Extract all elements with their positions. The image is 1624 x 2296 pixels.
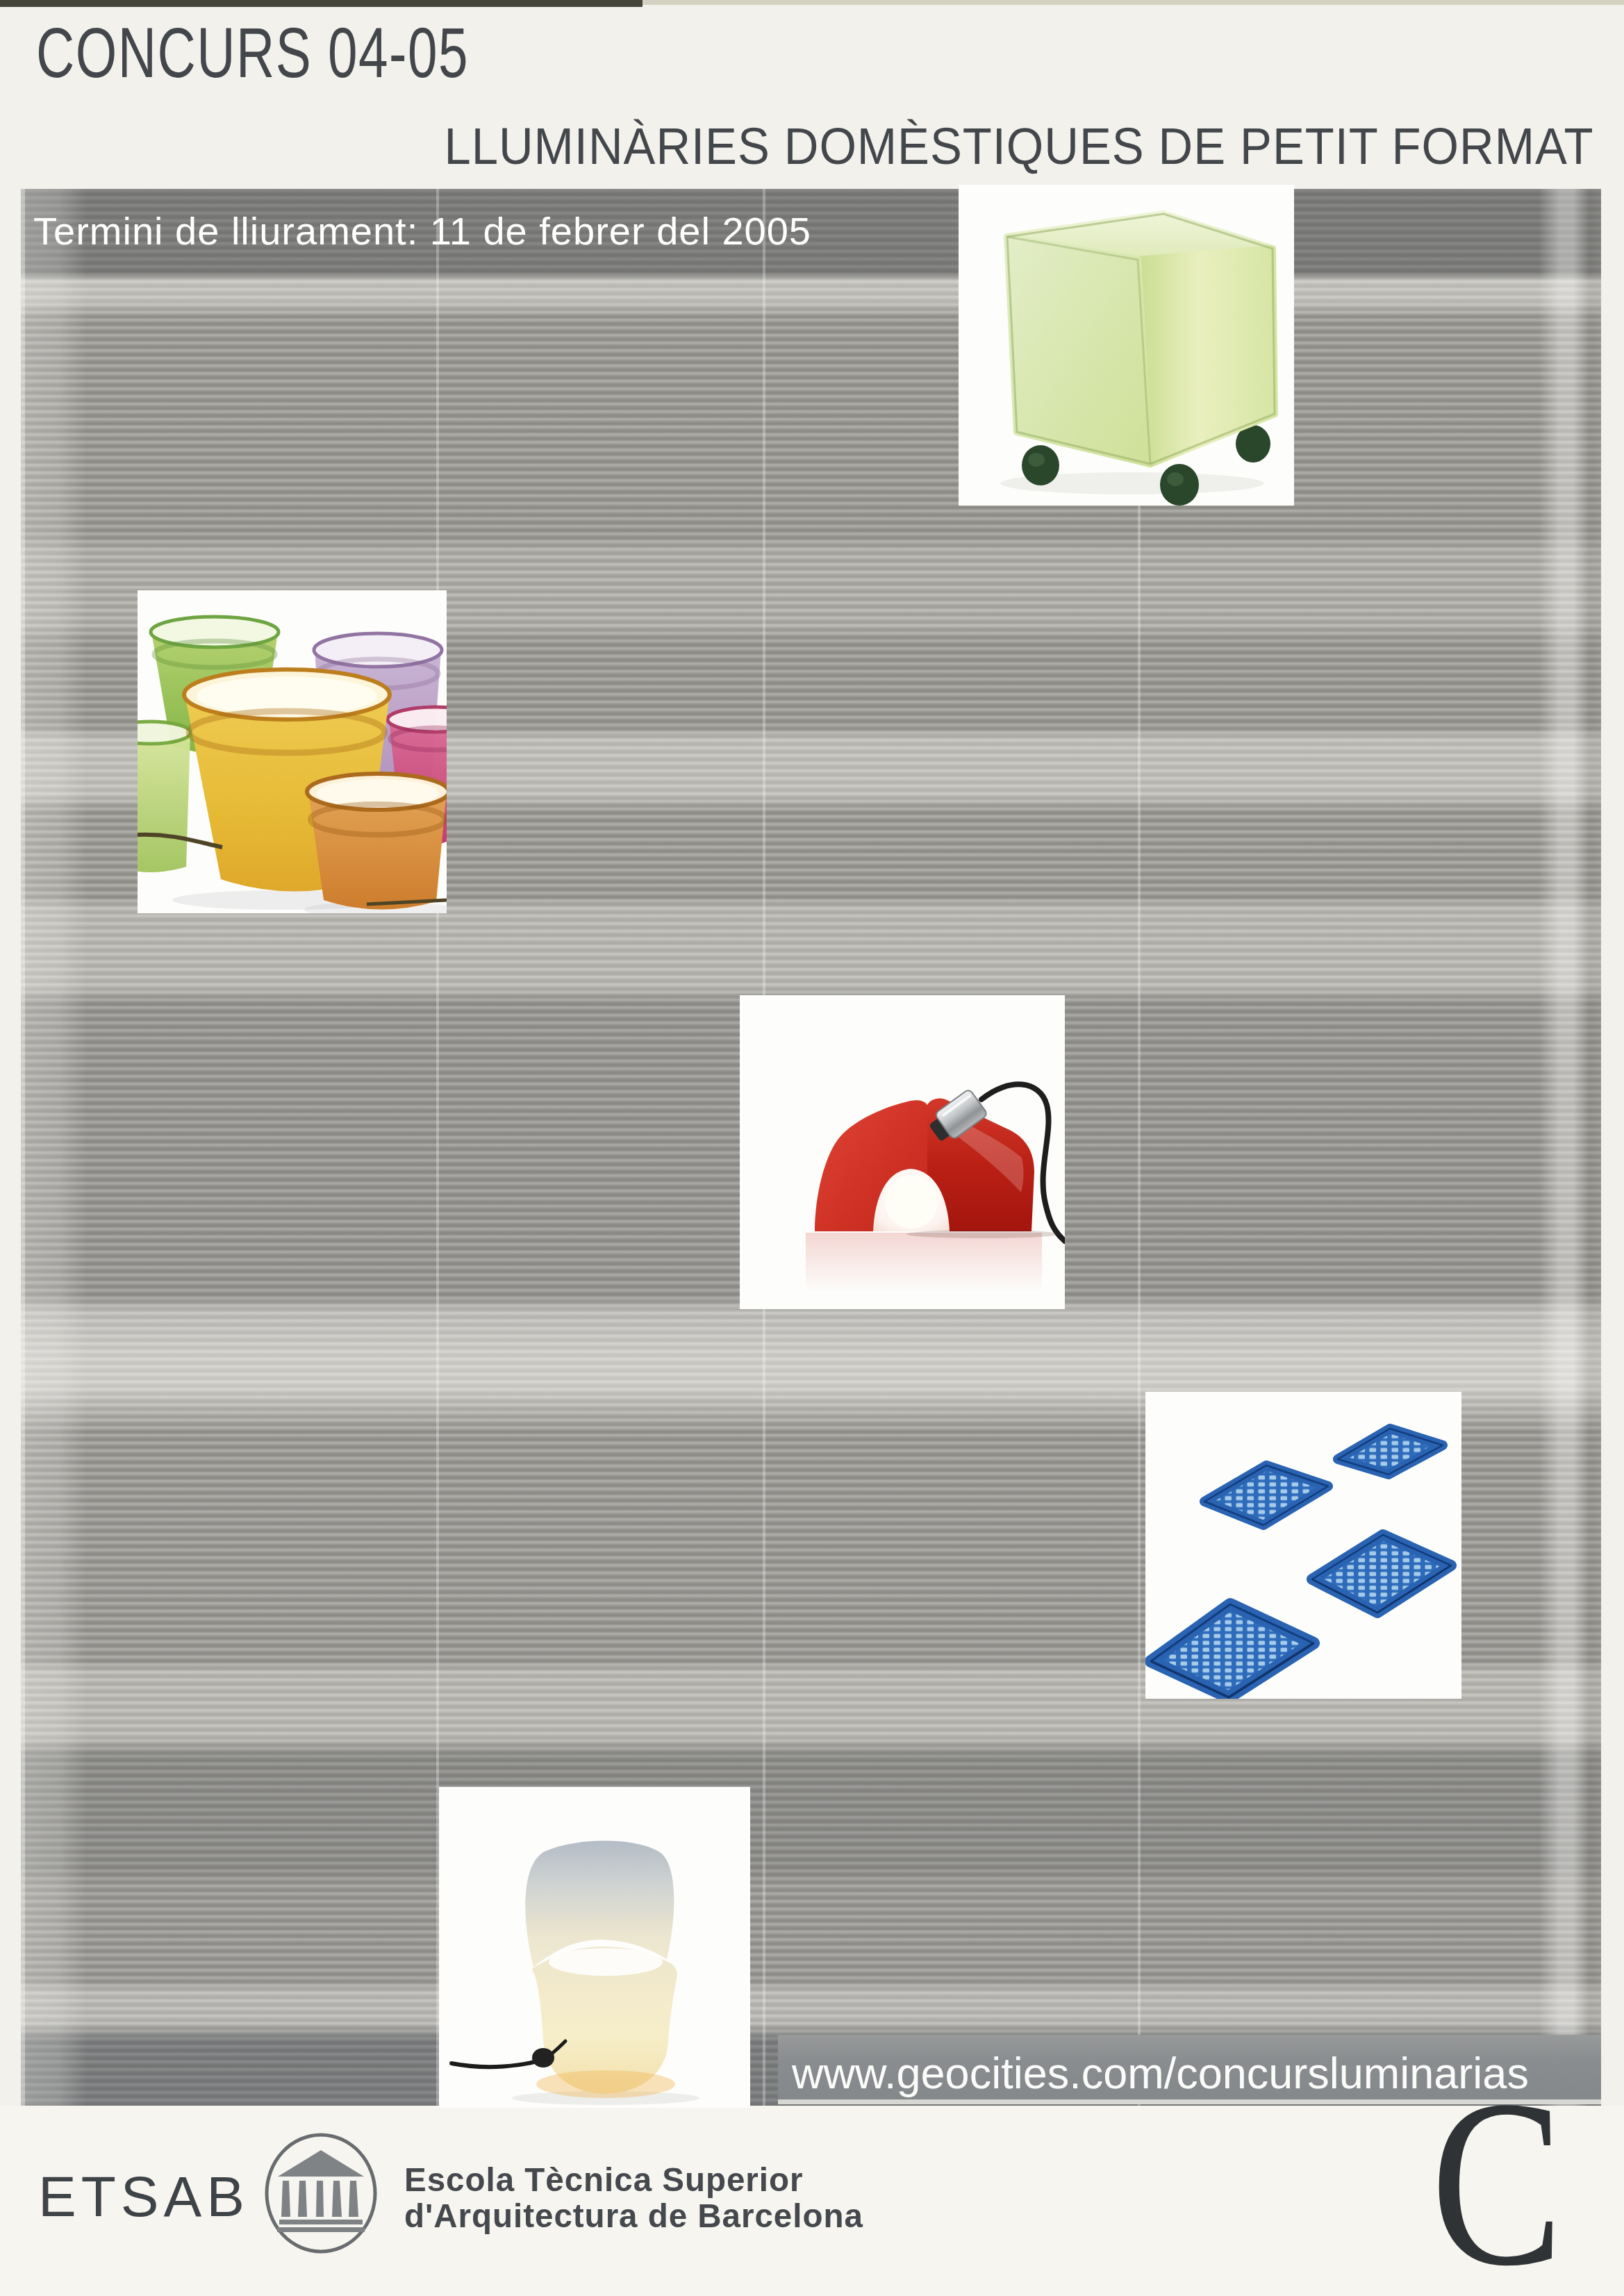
photo-panel-pot-lamps — [138, 590, 447, 913]
red-house-lamp-image — [740, 995, 1065, 1309]
deadline-text: Termini de lliurament: 11 de febrer del … — [33, 208, 811, 253]
temple-icon — [264, 2132, 378, 2254]
blue-mat-lamps-image — [1145, 1392, 1461, 1699]
scan-top-edge-light — [643, 0, 1624, 5]
photo-panel-cube-lamp — [959, 185, 1294, 506]
etsab-acronym: ETSAB — [38, 2164, 249, 2229]
etsab-temple-logo — [264, 2132, 378, 2254]
school-name-line1: Escola Tècnica Superior — [404, 2161, 863, 2197]
chair-lamp-image — [439, 1787, 750, 2108]
photo-panel-chair-lamp — [439, 1787, 750, 2108]
green-cube-lamp-image — [959, 185, 1294, 506]
website-url: www.geocities.com/concursluminarias — [792, 2048, 1529, 2098]
corner-letter-c: C — [1431, 2063, 1563, 2296]
flowerpot-lamps-image — [138, 590, 447, 913]
poster-subtitle: LLUMINÀRIES DOMÈSTIQUES DE PETIT FORMAT — [445, 118, 1594, 174]
poster-page: CONCURS 04-05 LLUMINÀRIES DOMÈSTIQUES DE… — [0, 0, 1624, 2296]
school-name-line2: d'Arquitectura de Barcelona — [404, 2197, 863, 2233]
school-name: Escola Tècnica Superior d'Arquitectura d… — [404, 2161, 863, 2233]
photo-panel-house-lamp — [740, 995, 1065, 1309]
photo-panel-mat-lamps — [1145, 1392, 1461, 1699]
scan-top-edge-dark — [0, 0, 643, 7]
poster-title: CONCURS 04-05 — [36, 14, 469, 92]
